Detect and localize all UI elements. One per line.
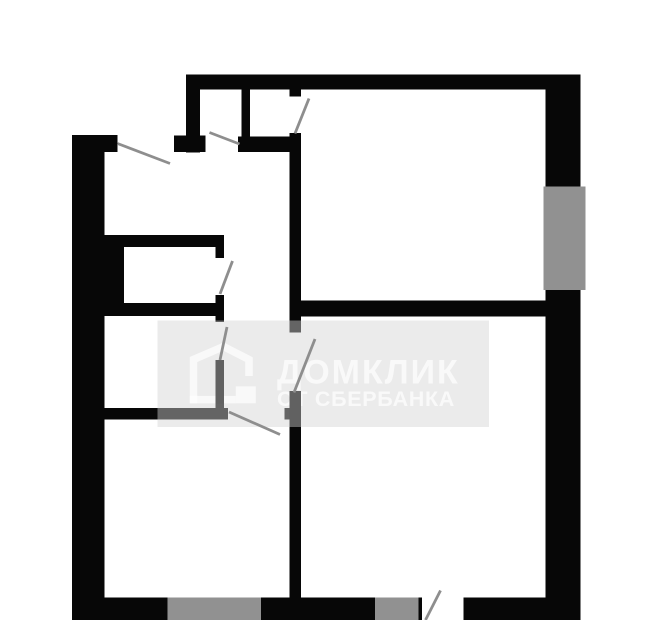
- svg-text:ОТ СБЕРБАНКА: ОТ СБЕРБАНКА: [277, 387, 455, 411]
- svg-text:ДОМКЛИК: ДОМКЛИК: [277, 354, 460, 392]
